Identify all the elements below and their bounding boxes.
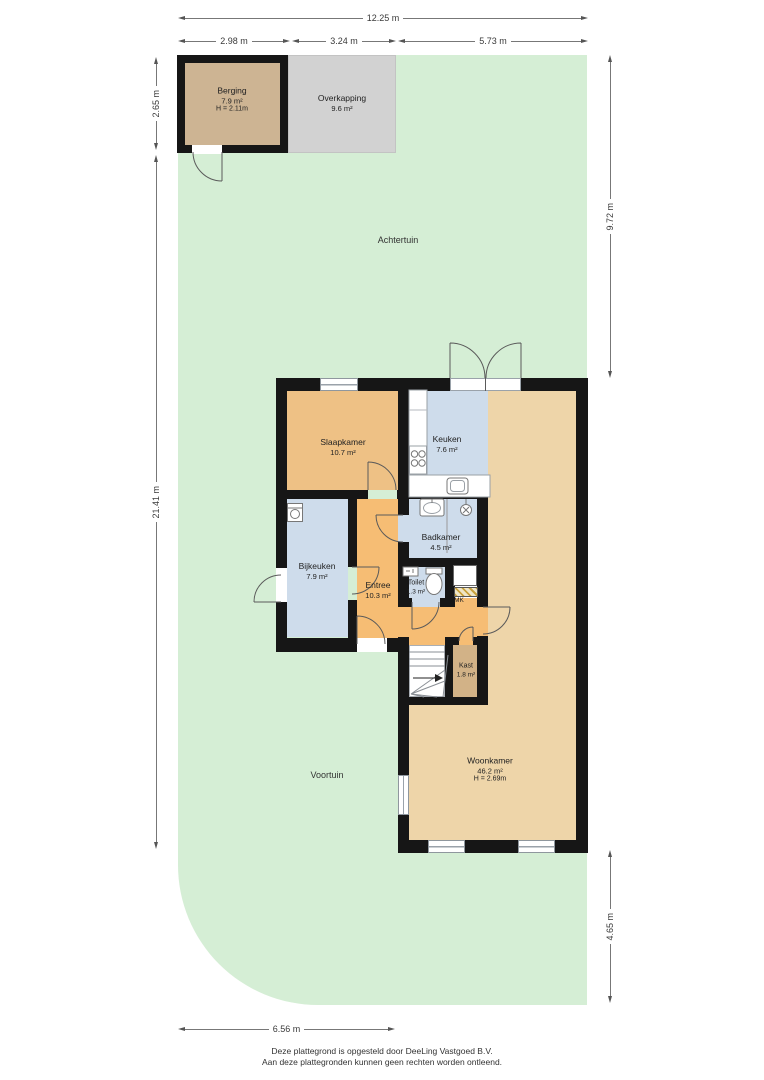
window: [320, 378, 358, 391]
dim-overkapping-width: 3.24 m: [292, 35, 396, 47]
dim-left-height: 21.41 m: [150, 155, 162, 849]
dim-right-top-height: 9.72 m: [604, 55, 616, 378]
wall: [440, 598, 453, 607]
wall: [477, 490, 488, 607]
room-label-meterkast: MK: [454, 597, 464, 605]
window: [518, 840, 555, 853]
room-label-bijkeuken: Bijkeuken 7.9 m²: [299, 561, 336, 581]
dim-front-width: 6.56 m: [178, 1023, 395, 1035]
wall: [398, 637, 409, 853]
front-garden-label: Voortuin: [310, 770, 343, 780]
room-label-berging: Berging 7.9 m² H = 2.11m: [216, 86, 248, 115]
door-opening-front-door: [357, 638, 387, 652]
wall: [348, 600, 357, 638]
wall: [398, 697, 488, 705]
dim-right-garden-width: 5.73 m: [398, 35, 588, 47]
entree-floor: [357, 499, 398, 638]
dim-berging-depth: 2.65 m: [150, 57, 162, 150]
window: [428, 840, 465, 853]
door-opening-berging: [192, 145, 222, 154]
wall: [398, 558, 488, 567]
wall: [348, 499, 357, 567]
dim-total-width: 12.25 m: [178, 12, 588, 24]
back-garden-label: Achtertuin: [378, 235, 419, 245]
wall: [397, 490, 488, 499]
wall: [576, 378, 588, 853]
floorplan-canvas: Achtertuin Voortuin Berging 7.9 m² H = 2…: [0, 0, 764, 1080]
wall: [398, 499, 409, 515]
room-label-slaapkamer: Slaapkamer 10.7 m²: [320, 437, 365, 457]
wall: [398, 840, 588, 853]
door-opening-bijkeuken-exterior: [276, 568, 287, 602]
wall: [473, 637, 488, 645]
dim-berging-width: 2.98 m: [178, 35, 290, 47]
staircase: [409, 645, 445, 697]
wall: [445, 637, 453, 705]
room-label-toilet: Toilet 1.3 m²: [407, 580, 425, 597]
room-label-keuken: Keuken 7.6 m²: [433, 434, 462, 454]
footer-disclaimer: Deze plattegrond is opgesteld door DeeLi…: [0, 1046, 764, 1068]
footer-line1: Deze plattegrond is opgesteld door DeeLi…: [0, 1046, 764, 1057]
room-label-overkapping: Overkapping 9.6 m²: [318, 93, 366, 113]
room-label-woonkamer: Woonkamer 46.2 m² H = 2.69m: [467, 756, 513, 785]
room-label-entree: Entree 10.3 m²: [365, 580, 390, 600]
footer-line2: Aan deze plattegronden kunnen geen recht…: [0, 1057, 764, 1068]
room-label-badkamer: Badkamer 4.5 m²: [422, 532, 461, 552]
wall: [287, 490, 368, 499]
wall: [477, 636, 488, 705]
wall: [398, 598, 412, 607]
meterkast-hatch: [454, 587, 478, 597]
window: [398, 775, 409, 815]
dim-right-bottom-height: 4.65 m: [604, 850, 616, 1003]
door-opening-garden-doors: [450, 378, 521, 391]
wall: [276, 638, 409, 652]
wall: [398, 390, 409, 499]
wall: [276, 378, 287, 652]
room-label-kast: Kast 1.8 m²: [457, 663, 475, 680]
